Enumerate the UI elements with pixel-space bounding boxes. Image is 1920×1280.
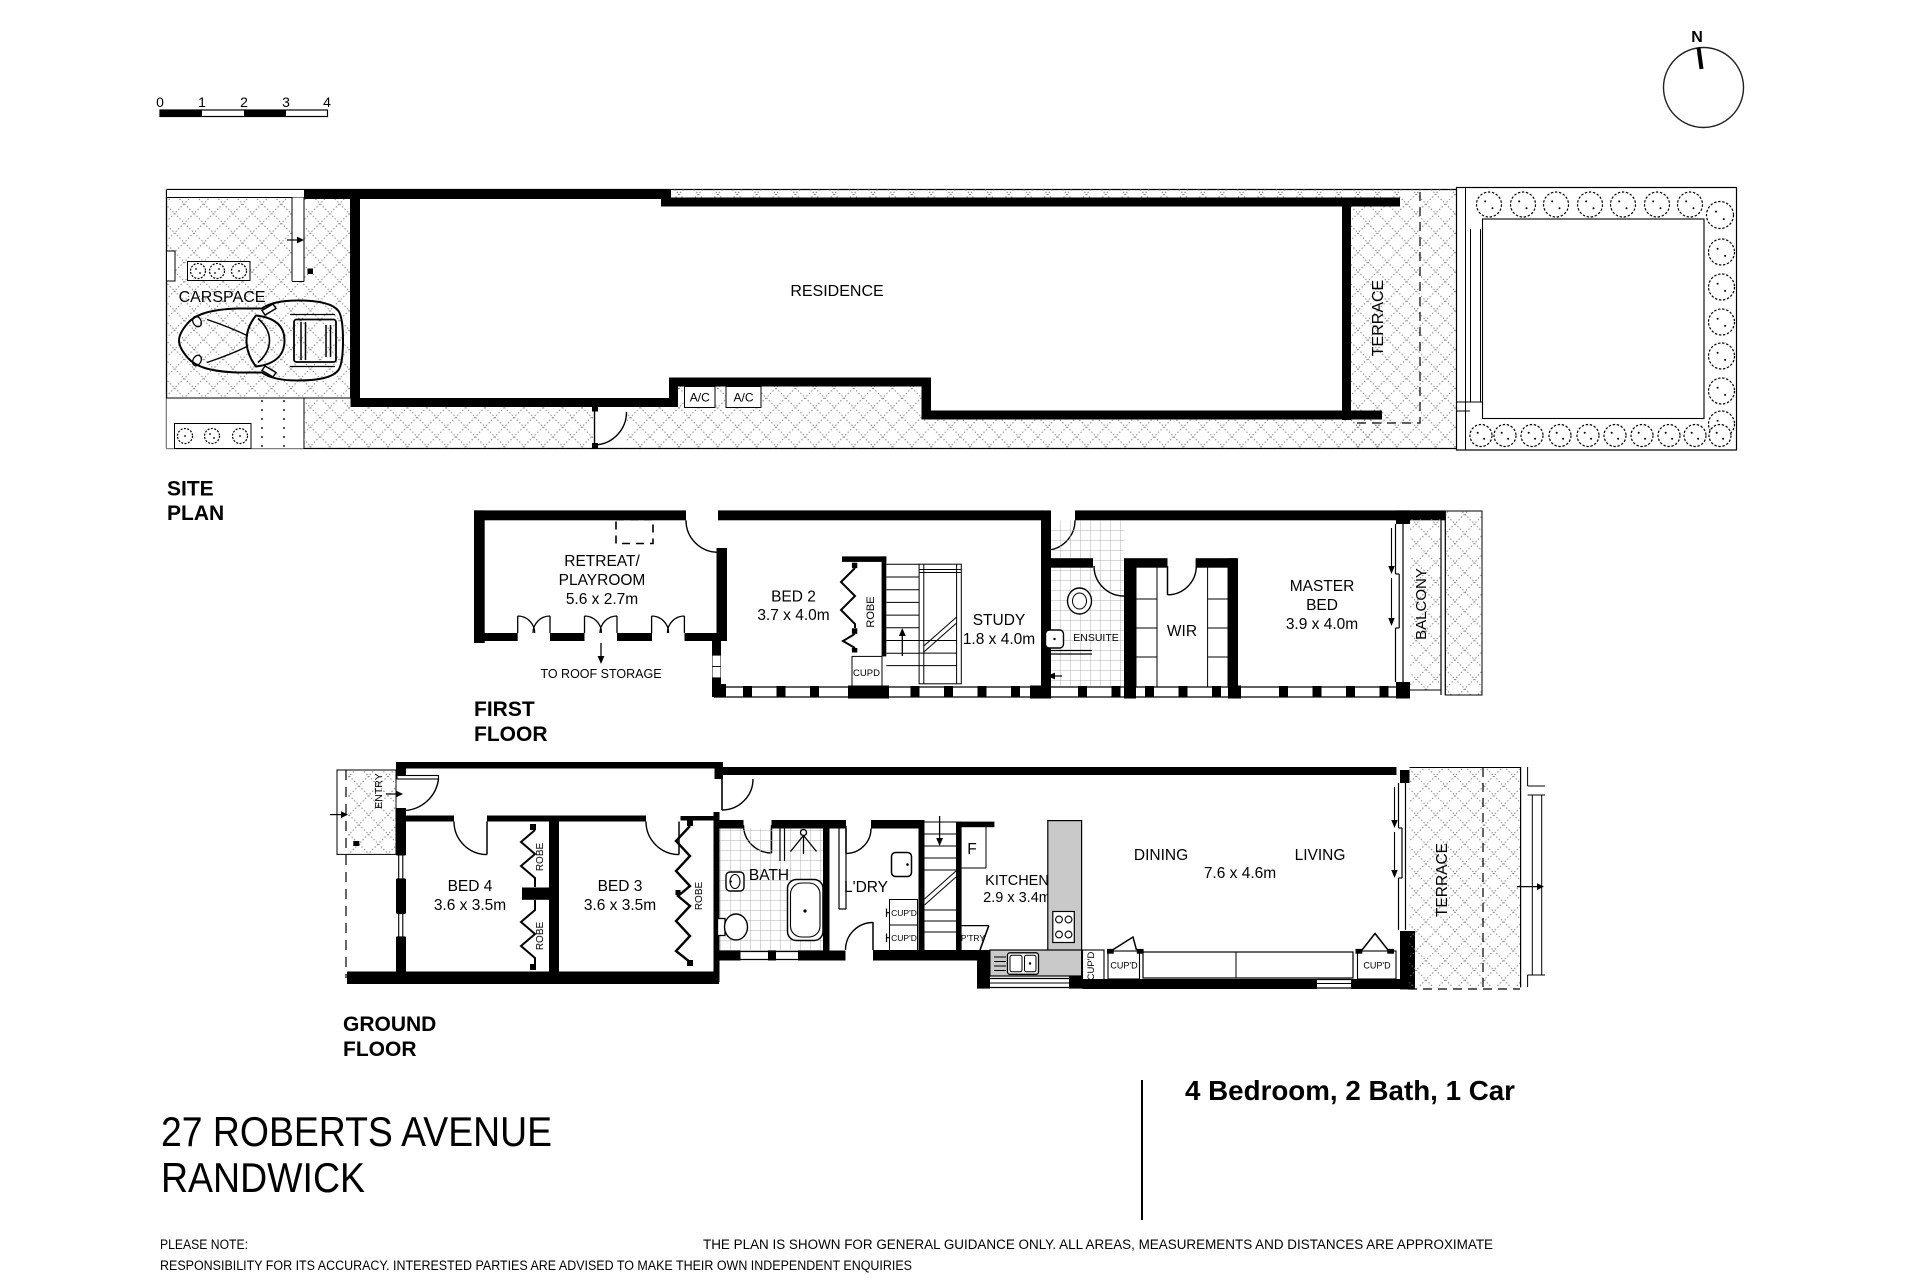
svg-text:BED 3: BED 3 xyxy=(598,878,643,895)
svg-text:ROBE: ROBE xyxy=(535,843,546,872)
svg-text:PLAYROOM: PLAYROOM xyxy=(559,572,646,589)
svg-text:4 Bedroom, 2 Bath, 1 Car: 4 Bedroom, 2 Bath, 1 Car xyxy=(1185,1075,1515,1106)
svg-text:L'DRY: L'DRY xyxy=(844,879,888,896)
svg-text:1.8 x 4.0m: 1.8 x 4.0m xyxy=(963,631,1035,648)
svg-text:CUP'D: CUP'D xyxy=(891,933,917,943)
svg-text:4: 4 xyxy=(323,94,331,110)
svg-text:BED: BED xyxy=(1306,597,1338,614)
svg-text:BATH: BATH xyxy=(749,867,789,884)
svg-text:BED 2: BED 2 xyxy=(771,589,816,606)
svg-text:2.9 x 3.4m: 2.9 x 3.4m xyxy=(983,890,1051,906)
svg-text:0: 0 xyxy=(156,94,164,110)
svg-text:STUDY: STUDY xyxy=(973,612,1026,629)
svg-text:F: F xyxy=(967,841,976,858)
svg-text:5.6 x 2.7m: 5.6 x 2.7m xyxy=(566,591,638,608)
svg-text:TERRACE: TERRACE xyxy=(1370,280,1387,356)
svg-text:DINING: DINING xyxy=(1134,847,1188,864)
svg-text:2: 2 xyxy=(240,94,248,110)
svg-text:RETREAT/: RETREAT/ xyxy=(564,553,640,570)
svg-text:SITE: SITE xyxy=(167,478,214,501)
svg-text:27 ROBERTS AVENUE: 27 ROBERTS AVENUE xyxy=(161,1108,552,1155)
svg-text:ENSUITE: ENSUITE xyxy=(1073,632,1119,644)
svg-text:TO ROOF STORAGE: TO ROOF STORAGE xyxy=(540,667,661,681)
svg-text:3: 3 xyxy=(282,94,290,110)
svg-text:RANDWICK: RANDWICK xyxy=(161,1154,365,1201)
svg-text:3.6 x 3.5m: 3.6 x 3.5m xyxy=(584,897,656,914)
svg-text:1: 1 xyxy=(198,94,206,110)
svg-text:3.9 x 4.0m: 3.9 x 4.0m xyxy=(1286,616,1358,633)
svg-text:CUP'D: CUP'D xyxy=(1086,951,1097,980)
svg-text:THE PLAN IS SHOWN FOR GENERAL: THE PLAN IS SHOWN FOR GENERAL GUIDANCE O… xyxy=(703,1237,1493,1252)
svg-text:N: N xyxy=(1691,29,1703,46)
svg-text:RESPONSIBILITY FOR ITS ACCURAC: RESPONSIBILITY FOR ITS ACCURACY. INTERES… xyxy=(160,1258,912,1273)
svg-text:LIVING: LIVING xyxy=(1295,847,1346,864)
svg-text:A/C: A/C xyxy=(733,391,753,405)
svg-text:ROBE: ROBE xyxy=(865,596,877,627)
svg-text:GROUND: GROUND xyxy=(343,1013,436,1036)
svg-text:CUP'D: CUP'D xyxy=(891,908,917,918)
svg-text:PLEASE NOTE:: PLEASE NOTE: xyxy=(160,1237,248,1252)
svg-text:MASTER: MASTER xyxy=(1290,578,1355,595)
svg-text:A/C: A/C xyxy=(690,391,710,405)
svg-text:TERRACE: TERRACE xyxy=(1434,843,1451,917)
svg-text:BED 4: BED 4 xyxy=(448,878,493,895)
svg-text:CUP'D: CUP'D xyxy=(1110,961,1138,971)
svg-text:CARSPACE: CARSPACE xyxy=(179,289,266,306)
svg-text:3.6 x 3.5m: 3.6 x 3.5m xyxy=(434,897,506,914)
svg-text:ENTRY: ENTRY xyxy=(373,773,385,808)
svg-text:FLOOR: FLOOR xyxy=(474,723,548,746)
svg-text:WIR: WIR xyxy=(1167,623,1197,640)
svg-text:BALCONY: BALCONY xyxy=(1413,568,1430,640)
svg-text:FIRST: FIRST xyxy=(474,698,535,721)
svg-text:ROBE: ROBE xyxy=(535,922,546,951)
svg-text:CUP'D: CUP'D xyxy=(1363,961,1391,971)
svg-text:CUPD: CUPD xyxy=(853,668,880,679)
svg-text:RESIDENCE: RESIDENCE xyxy=(790,283,883,300)
svg-text:PLAN: PLAN xyxy=(167,502,224,525)
svg-text:7.6 x 4.6m: 7.6 x 4.6m xyxy=(1204,865,1276,882)
svg-text:KITCHEN: KITCHEN xyxy=(985,873,1049,889)
svg-text:3.7 x 4.0m: 3.7 x 4.0m xyxy=(757,607,829,624)
svg-text:P'TRY: P'TRY xyxy=(961,933,985,943)
svg-text:FLOOR: FLOOR xyxy=(343,1038,417,1061)
svg-text:ROBE: ROBE xyxy=(694,882,705,911)
